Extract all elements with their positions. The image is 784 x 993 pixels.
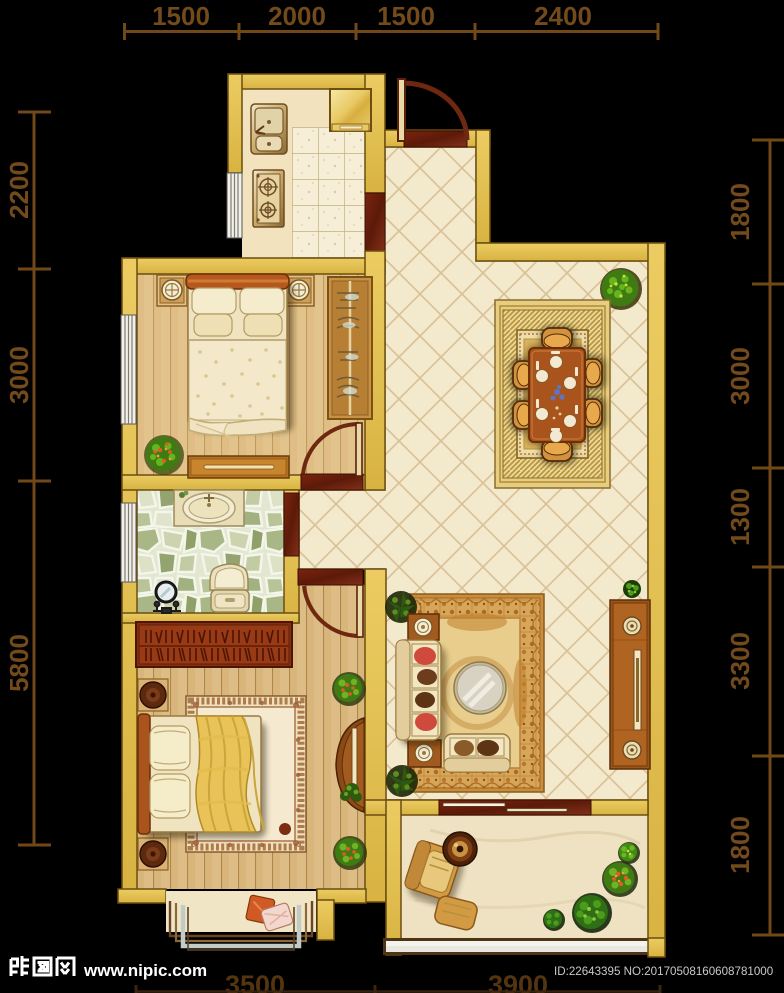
svg-text:ID:22643395 NO:201705081606087: ID:22643395 NO:20170508160608781000	[554, 965, 773, 978]
svg-text:3000: 3000	[4, 346, 34, 404]
svg-text:1500: 1500	[152, 1, 210, 31]
svg-text:1800: 1800	[725, 183, 755, 241]
svg-text:1300: 1300	[725, 488, 755, 546]
svg-text:3500: 3500	[225, 970, 285, 993]
svg-text:3000: 3000	[725, 347, 755, 405]
svg-text:2000: 2000	[268, 1, 326, 31]
svg-text:3300: 3300	[725, 632, 755, 690]
svg-text:1500: 1500	[377, 1, 435, 31]
svg-text:5800: 5800	[4, 634, 34, 692]
svg-text:2200: 2200	[4, 161, 34, 219]
svg-text:3900: 3900	[488, 970, 548, 993]
svg-text:1800: 1800	[725, 816, 755, 874]
svg-text:www.nipic.com: www.nipic.com	[83, 961, 207, 980]
svg-text:2400: 2400	[534, 1, 592, 31]
